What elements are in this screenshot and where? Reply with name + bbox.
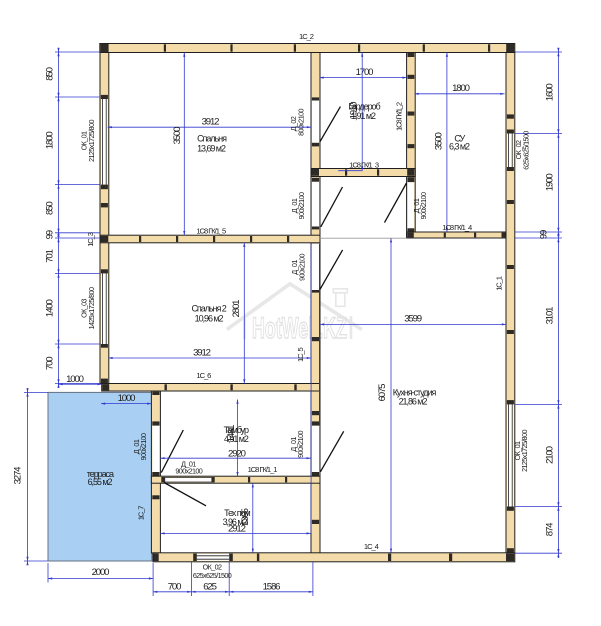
svg-text:625: 625 [203, 582, 216, 593]
svg-text:1,91 м2: 1,91 м2 [351, 111, 376, 121]
svg-text:99: 99 [539, 230, 550, 239]
svg-text:6075: 6075 [377, 384, 388, 402]
svg-text:900х2100: 900х2100 [139, 433, 148, 460]
svg-text:1С8 ГК/1_5: 1С8 ГК/1_5 [196, 226, 226, 235]
svg-text:3101: 3101 [544, 307, 555, 325]
svg-text:700: 700 [168, 582, 181, 593]
svg-text:6,55 м2: 6,55 м2 [88, 477, 113, 487]
svg-text:3274: 3274 [12, 466, 23, 485]
svg-text:1С8 ГК/1_3: 1С8 ГК/1_3 [349, 160, 379, 169]
svg-text:3500: 3500 [172, 127, 183, 145]
svg-text:HotWell.KZ: HotWell.KZ [252, 312, 347, 345]
svg-text:700: 700 [44, 357, 55, 370]
svg-text:1С_2: 1С_2 [299, 32, 314, 41]
svg-text:2000: 2000 [92, 567, 110, 578]
svg-text:874: 874 [544, 522, 555, 536]
svg-text:900х2100: 900х2100 [298, 254, 307, 281]
svg-text:13,69 м2: 13,69 м2 [197, 143, 226, 153]
svg-text:800х2100: 800х2100 [296, 109, 305, 136]
svg-text:900х2100: 900х2100 [297, 192, 306, 219]
svg-text:2100: 2100 [544, 446, 555, 464]
svg-text:3599: 3599 [404, 313, 422, 324]
svg-text:1900: 1900 [544, 174, 555, 192]
svg-text:701: 701 [44, 249, 55, 262]
svg-text:1586: 1586 [263, 582, 281, 593]
svg-text:Спальня 2: Спальня 2 [191, 303, 226, 313]
svg-text:1С8 ГК/1_1: 1С8 ГК/1_1 [248, 465, 278, 474]
svg-text:1С_6: 1С_6 [196, 371, 211, 380]
svg-text:1С_4: 1С_4 [364, 542, 379, 551]
svg-text:2125х1725/800: 2125х1725/800 [520, 430, 529, 472]
svg-text:1600: 1600 [544, 84, 555, 102]
svg-text:6,3 м2: 6,3 м2 [449, 142, 470, 152]
svg-text:625х625/1500: 625х625/1500 [521, 131, 530, 170]
svg-text:625х625/1500: 625х625/1500 [193, 571, 232, 580]
svg-text:1425х1725/800: 1425х1725/800 [87, 287, 96, 329]
svg-text:Гардероб: Гардероб [348, 101, 380, 111]
svg-text:2801: 2801 [231, 300, 242, 318]
svg-text:1С_7: 1С_7 [136, 506, 145, 520]
svg-text:1800: 1800 [452, 83, 470, 94]
svg-text:1С_1: 1С_1 [495, 276, 504, 290]
svg-text:900х2100: 900х2100 [175, 467, 202, 476]
svg-text:1700: 1700 [356, 67, 374, 78]
svg-text:3500: 3500 [434, 133, 445, 151]
svg-text:Спальня: Спальня [197, 134, 227, 144]
svg-text:3912: 3912 [202, 117, 220, 128]
svg-text:1С_3: 1С_3 [86, 232, 95, 246]
svg-text:21,86 м2: 21,86 м2 [399, 397, 428, 407]
svg-text:99: 99 [44, 230, 55, 239]
svg-text:1С_5: 1С_5 [296, 348, 305, 362]
svg-text:850: 850 [44, 67, 55, 80]
svg-text:1С8 ГК/1_4: 1С8 ГК/1_4 [442, 223, 472, 232]
svg-text:900х2100: 900х2100 [419, 192, 428, 219]
svg-text:3912: 3912 [193, 348, 211, 359]
svg-text:900х2100: 900х2100 [296, 431, 305, 458]
svg-text:10,96 м2: 10,96 м2 [195, 314, 224, 324]
svg-text:2125х1725/800: 2125х1725/800 [87, 120, 96, 162]
svg-text:1С8 ГК/1_2: 1С8 ГК/1_2 [395, 102, 404, 131]
svg-text:1400: 1400 [44, 300, 55, 318]
svg-text:850: 850 [44, 202, 55, 215]
svg-text:1000: 1000 [118, 393, 136, 404]
svg-text:1800: 1800 [44, 132, 55, 150]
svg-text:2920: 2920 [228, 448, 246, 459]
svg-text:4,91 м2: 4,91 м2 [224, 434, 249, 444]
svg-text:3,96 м2: 3,96 м2 [223, 517, 248, 527]
